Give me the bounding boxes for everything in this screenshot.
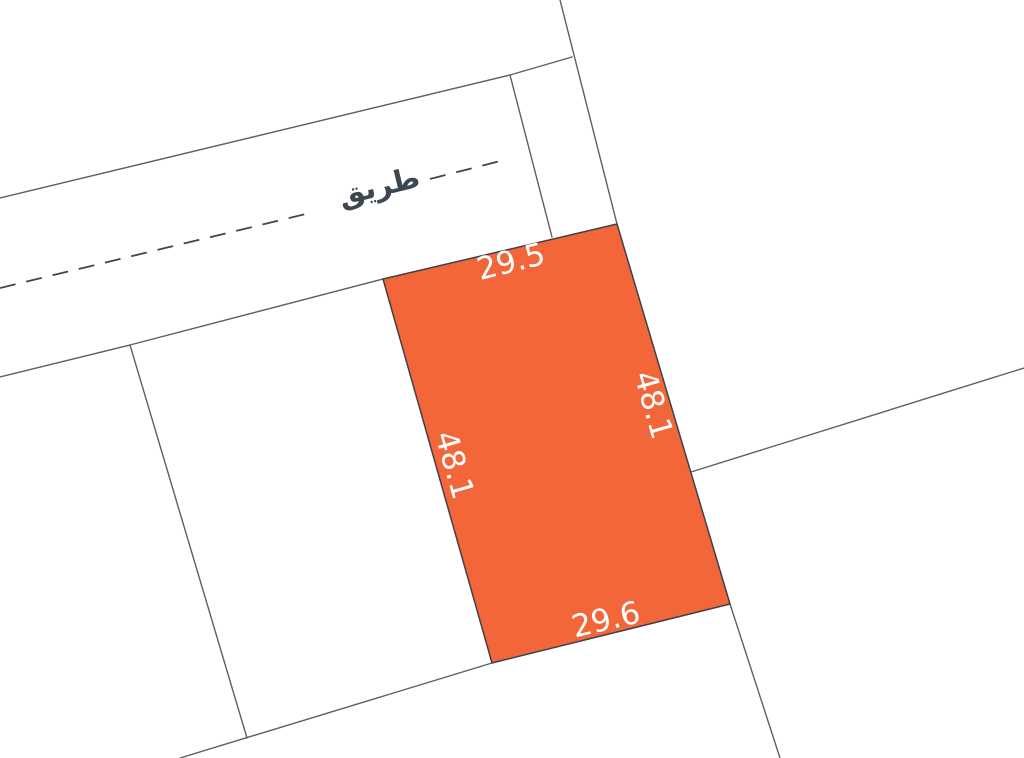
parcel-map[interactable]: 29.5 48.1 48.1 29.6 طريق [0,0,1024,758]
parcel-map-canvas[interactable]: 29.5 48.1 48.1 29.6 طريق [0,0,1024,758]
